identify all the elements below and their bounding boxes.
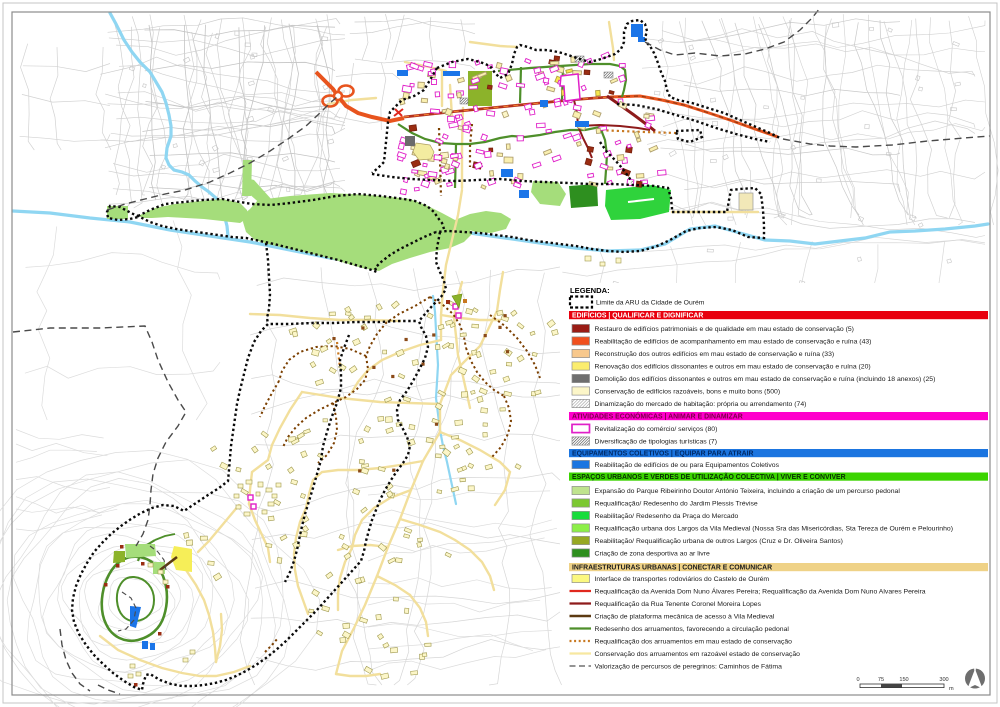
svg-text:Reabilitação de edifícios de a: Reabilitação de edifícios de acompanhame…: [595, 338, 872, 345]
svg-text:150: 150: [899, 677, 908, 683]
svg-text:Requalificação urbana dos Larg: Requalificação urbana dos Largos da Vila…: [595, 525, 953, 532]
svg-text:0: 0: [856, 677, 859, 683]
svg-text:Requalificação dos arruamentos: Requalificação dos arruamentos em mau es…: [595, 638, 793, 645]
svg-text:75: 75: [878, 677, 884, 683]
svg-text:EQUIPAMENTOS COLETIVOS | EQU: EQUIPAMENTOS COLETIVOS | EQUIPAR PARA AT…: [572, 450, 753, 457]
svg-text:Reconstrução dos outros edifíc: Reconstrução dos outros edifícios em mau…: [595, 351, 835, 358]
svg-text:Reabilitação/ Requalificação u: Reabilitação/ Requalificação urbana de o…: [595, 538, 843, 545]
svg-text:Requalificação da Avenida Dom: Requalificação da Avenida Dom Nuno Álvar…: [595, 586, 926, 595]
svg-text:Limite da ARU da Cidade de Our: Limite da ARU da Cidade de Ourém: [596, 300, 705, 307]
svg-text:Revitalização do comércio/ ser: Revitalização do comércio/ serviços (80): [595, 426, 718, 433]
svg-text:ATIVIDADES ECONÓMICAS | ANIM: ATIVIDADES ECONÓMICAS | ANIMAR E DINAMIZ…: [572, 411, 743, 420]
svg-text:Interface de transportes rodov: Interface de transportes rodoviários do …: [595, 576, 770, 583]
svg-text:Reabilitação/ Redesenho da Pra: Reabilitação/ Redesenho da Praça do Merc…: [595, 513, 739, 520]
svg-text:ESPAÇOS URBANOS E VERDES DE UT: ESPAÇOS URBANOS E VERDES DE UTILIZAÇÃO C…: [572, 472, 846, 481]
svg-text:Diversificação de tipologias t: Diversificação de tipologias turísticas …: [595, 438, 717, 445]
svg-text:LEGENDA:: LEGENDA:: [570, 286, 610, 295]
svg-text:Conservação dos arruamentos em: Conservação dos arruamentos em razoável …: [595, 651, 801, 658]
svg-text:Criação de zona desportiva ao: Criação de zona desportiva ao ar livre: [595, 550, 710, 557]
svg-text:Criação de plataforma mecânica: Criação de plataforma mecânica de acesso…: [595, 613, 775, 620]
svg-text:300: 300: [939, 677, 948, 683]
svg-text:Conservação de edifícios razoá: Conservação de edifícios razoáveis, bons…: [595, 388, 781, 395]
svg-text:EDIFÍCIOS | QUALIFICAR E DIG: EDIFÍCIOS | QUALIFICAR E DIGNIFICAR: [572, 310, 703, 319]
svg-text:INFRAESTRUTURAS URBANAS | CO: INFRAESTRUTURAS URBANAS | CONECTAR E COM…: [572, 564, 772, 571]
svg-text:Requalificação da Rua Tenente: Requalificação da Rua Tenente Coronel Mo…: [595, 601, 762, 608]
svg-text:Renovação dos edifícios disson: Renovação dos edifícios dissonantes e ou…: [595, 363, 871, 370]
svg-text:Demolição dos edifícios disson: Demolição dos edifícios dissonantes e ou…: [595, 376, 936, 383]
svg-text:m: m: [949, 686, 954, 692]
svg-text:Valorização de percursos de pe: Valorização de percursos de peregrinos: …: [595, 663, 783, 670]
svg-text:Restauro de edifícios patrimon: Restauro de edifícios patrimoniais e de …: [595, 326, 854, 333]
svg-text:Expansão do Parque Ribeirinho: Expansão do Parque Ribeirinho Doutor Ant…: [595, 488, 901, 495]
svg-text:Redesenho dos arruamentos, fav: Redesenho dos arruamentos, favorecendo a…: [595, 626, 790, 633]
svg-text:Dinamização do mercado de habi: Dinamização do mercado de habitação: pró…: [595, 401, 807, 408]
svg-text:Reabilitação de edifícios de o: Reabilitação de edifícios de ou para Equ…: [595, 462, 780, 469]
svg-text:Requalificação/ Redesenho do J: Requalificação/ Redesenho do Jardim Ples…: [595, 500, 758, 507]
